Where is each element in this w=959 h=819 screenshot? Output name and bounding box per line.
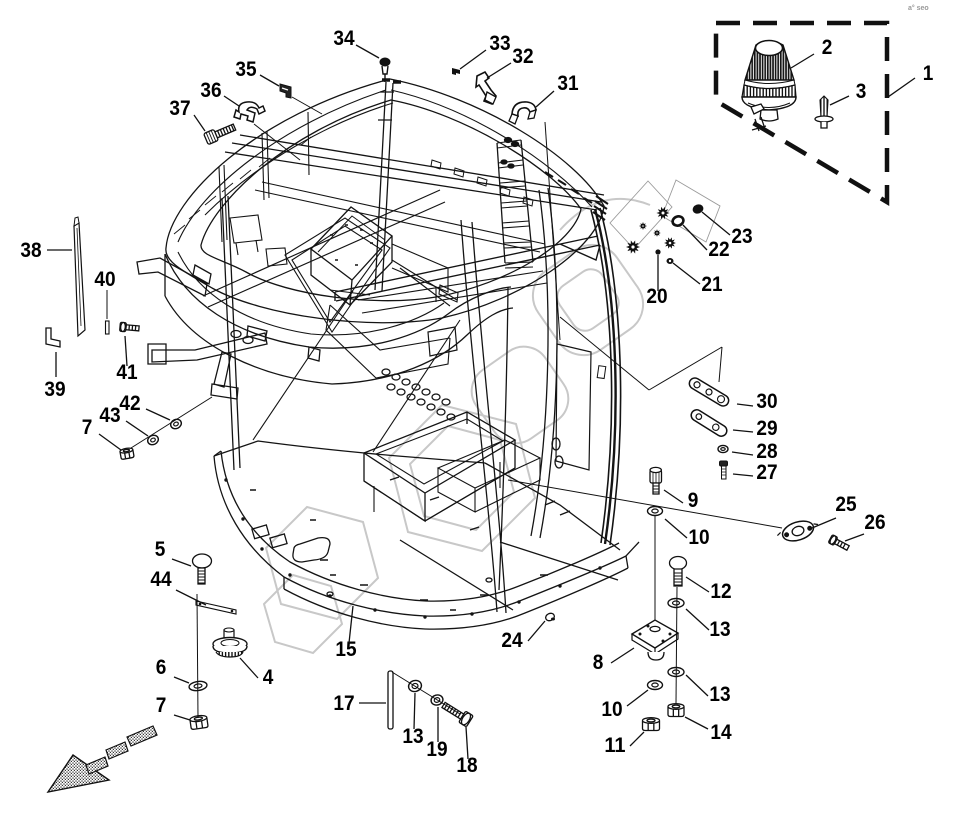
svg-text:21: 21 — [701, 273, 722, 296]
svg-text:6: 6 — [156, 656, 167, 679]
svg-text:30: 30 — [756, 390, 777, 413]
svg-text:35: 35 — [235, 58, 256, 81]
svg-text:19: 19 — [426, 738, 447, 761]
svg-text:36: 36 — [200, 79, 221, 102]
svg-text:13: 13 — [402, 725, 423, 748]
svg-text:38: 38 — [20, 239, 41, 262]
svg-text:10: 10 — [601, 698, 622, 721]
svg-text:12: 12 — [710, 580, 731, 603]
svg-text:1: 1 — [923, 62, 934, 85]
svg-text:9: 9 — [688, 489, 699, 512]
svg-text:26: 26 — [864, 511, 885, 534]
svg-text:5: 5 — [155, 538, 166, 561]
svg-text:11: 11 — [604, 734, 626, 757]
svg-text:3: 3 — [856, 80, 867, 103]
svg-text:17: 17 — [333, 692, 354, 715]
svg-text:25: 25 — [835, 493, 856, 516]
svg-text:23: 23 — [731, 225, 752, 248]
svg-text:32: 32 — [512, 45, 533, 68]
svg-text:42: 42 — [119, 392, 140, 415]
svg-text:27: 27 — [756, 461, 777, 484]
svg-text:13: 13 — [709, 683, 730, 706]
svg-text:33: 33 — [489, 32, 510, 55]
svg-text:7: 7 — [156, 694, 167, 717]
svg-text:10: 10 — [688, 526, 709, 549]
svg-text:13: 13 — [709, 618, 730, 641]
svg-text:34: 34 — [333, 27, 354, 50]
svg-text:7: 7 — [82, 416, 93, 439]
svg-text:18: 18 — [456, 754, 477, 777]
svg-text:29: 29 — [756, 417, 777, 440]
svg-text:4: 4 — [263, 666, 274, 689]
svg-text:28: 28 — [756, 440, 777, 463]
svg-text:8: 8 — [593, 651, 604, 674]
svg-text:40: 40 — [94, 268, 115, 291]
svg-text:20: 20 — [646, 285, 667, 308]
svg-text:39: 39 — [44, 378, 65, 401]
svg-text:24: 24 — [501, 629, 522, 652]
svg-text:22: 22 — [708, 238, 729, 261]
svg-text:15: 15 — [335, 638, 356, 661]
svg-text:43: 43 — [99, 404, 120, 427]
svg-text:31: 31 — [557, 72, 578, 95]
svg-text:37: 37 — [169, 97, 190, 120]
svg-text:a° seo: a° seo — [908, 4, 929, 12]
svg-text:14: 14 — [710, 721, 731, 744]
svg-text:44: 44 — [150, 568, 171, 591]
svg-text:2: 2 — [822, 36, 833, 59]
